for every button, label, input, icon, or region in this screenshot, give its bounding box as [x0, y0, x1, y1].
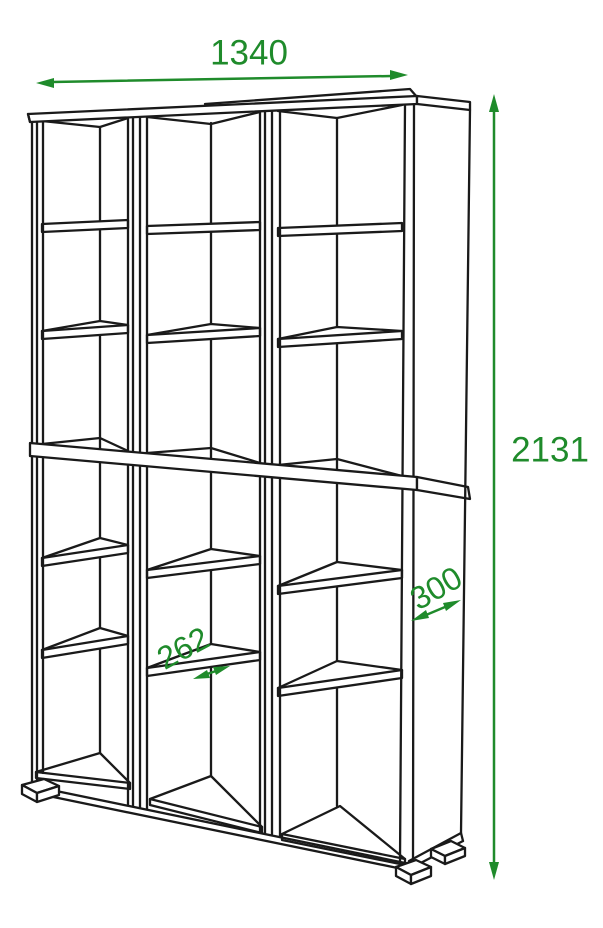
arrow-up-icon	[489, 94, 499, 112]
shelf-row-1	[42, 220, 402, 236]
bottom-deck-boards	[36, 753, 405, 865]
width-dimension-label: 1340	[210, 34, 288, 73]
shelf-row-5	[42, 628, 402, 696]
width-dimension-arrow	[52, 76, 392, 82]
width-dimension: 1340	[36, 34, 408, 89]
height-dimension: 2131	[489, 94, 589, 880]
arrow-down-left-icon	[193, 670, 210, 679]
shelf-row-4	[42, 538, 402, 594]
arrow-right-icon	[390, 70, 408, 80]
arrow-up-right-icon	[213, 666, 230, 675]
feet	[22, 779, 465, 884]
arrow-left-icon	[36, 78, 54, 88]
middle-junction-board	[30, 438, 470, 499]
furniture-dimension-diagram: 1340 2131 300 262	[0, 0, 603, 928]
cell-width-dimension-arrow	[207, 671, 216, 674]
arrow-down-icon	[489, 862, 499, 880]
shelving-unit-drawing: 1340 2131 300 262	[0, 0, 603, 928]
height-dimension-label: 2131	[511, 431, 589, 470]
shelf-row-2	[42, 321, 402, 347]
top-board	[28, 89, 470, 122]
